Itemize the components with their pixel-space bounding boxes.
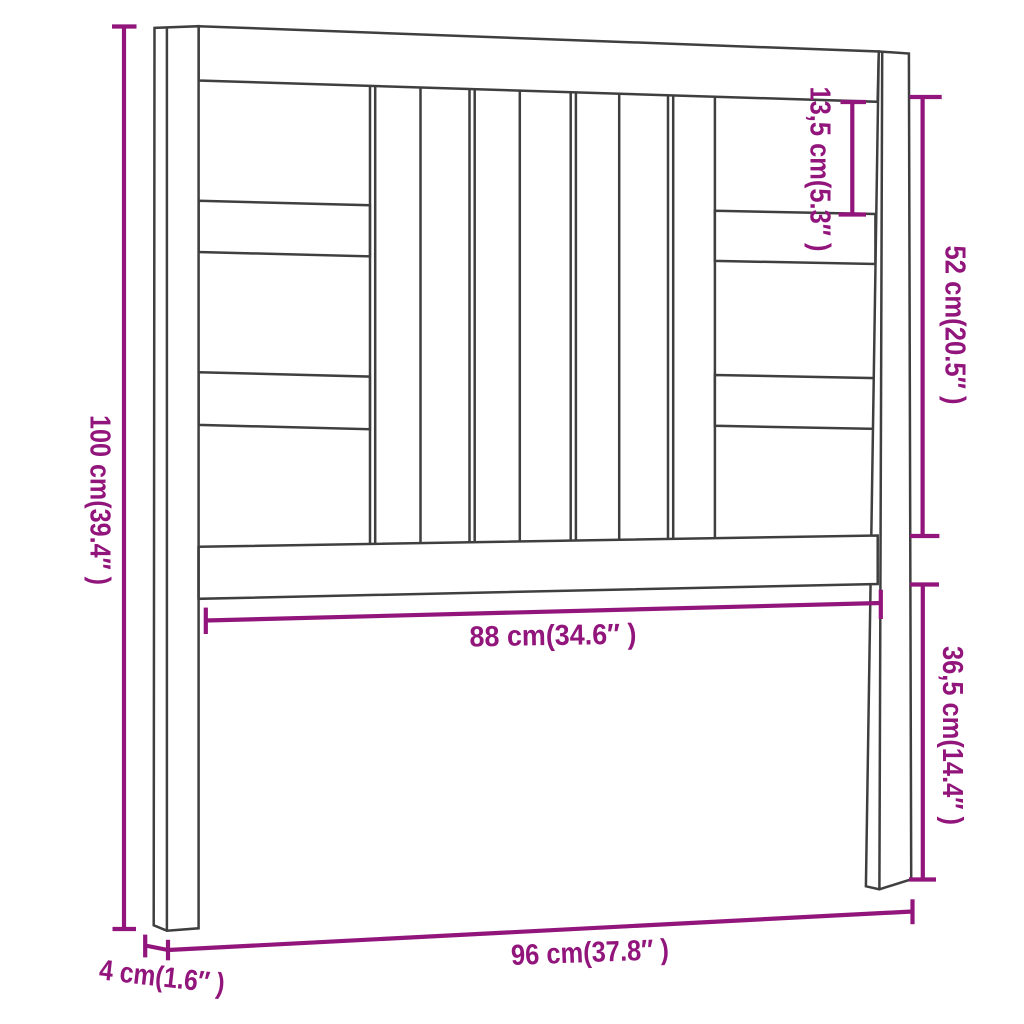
svg-text:13,5 cm(5.3″ ): 13,5 cm(5.3″ ) [804, 87, 836, 252]
svg-text:88 cm(34.6″ ): 88 cm(34.6″ ) [469, 619, 637, 654]
svg-text:52 cm(20.5″ ): 52 cm(20.5″ ) [939, 246, 971, 405]
svg-text:36,5 cm(14.4″ ): 36,5 cm(14.4″ ) [936, 646, 968, 825]
svg-text:96 cm(37.8″ ): 96 cm(37.8″ ) [510, 934, 669, 972]
svg-text:100 cm(39.4″ ): 100 cm(39.4″ ) [84, 415, 116, 585]
